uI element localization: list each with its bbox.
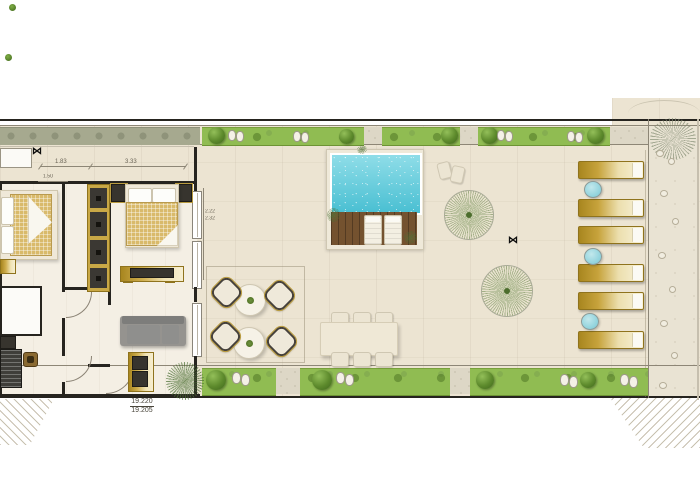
stone	[672, 218, 679, 225]
pebble	[569, 376, 578, 388]
round-bush	[441, 127, 458, 144]
pebble	[575, 132, 583, 143]
sofa	[120, 316, 186, 346]
wardrobe-cell	[90, 188, 107, 208]
partition-wall	[62, 181, 65, 292]
level-marker-icon: ⋈	[32, 147, 42, 157]
table-centerpiece	[246, 340, 253, 347]
pebble	[497, 130, 505, 141]
stone	[658, 252, 666, 259]
tree-marker	[9, 4, 16, 11]
stone	[668, 158, 675, 165]
round-bush	[339, 129, 354, 144]
louvered-unit	[0, 349, 22, 388]
pebble	[232, 372, 241, 384]
pebble	[241, 374, 250, 386]
dimension-line	[40, 166, 186, 167]
wardrobe-cell	[90, 268, 107, 288]
planter-divider	[610, 127, 648, 144]
bed-pillow	[128, 188, 152, 203]
ornamental-plant	[444, 190, 494, 240]
round-bush	[206, 370, 226, 390]
sofa-cushion	[162, 325, 179, 344]
teal-side-table	[581, 313, 599, 330]
pebble	[293, 131, 301, 142]
gravel-strip-line	[648, 119, 649, 398]
stone	[656, 150, 664, 157]
stair-hatch	[0, 399, 54, 445]
wardrobe-cell	[90, 240, 107, 264]
lounger-pillow	[632, 266, 642, 280]
east-wall-segment	[194, 287, 197, 302]
planter-divider	[364, 127, 382, 144]
table-centerpiece	[247, 297, 254, 304]
stone	[660, 190, 668, 197]
window	[192, 241, 202, 289]
lounger-pillow	[632, 201, 642, 215]
terrace-side-wall	[194, 147, 197, 183]
level-marker-icon: ⋈	[508, 236, 518, 246]
partition-wall	[62, 318, 65, 356]
tree-marker	[5, 54, 12, 61]
lounger-pillow	[632, 333, 642, 347]
muted-hedge	[0, 127, 200, 145]
teal-side-table	[584, 181, 602, 198]
pebble	[336, 372, 345, 384]
planter-box	[0, 148, 32, 168]
floor-plan-canvas: 1.83 3.33 1.50 2.22 2.32 ⋈ ⋈ 19.220 19.2…	[0, 0, 700, 500]
lounger-pillow	[632, 163, 642, 177]
pebble	[505, 131, 513, 142]
cabinet-item	[132, 371, 148, 387]
deck-plant	[327, 208, 340, 222]
cabinet-item	[132, 356, 148, 370]
bed-pillow	[152, 188, 176, 203]
terrace-boundary-line	[0, 146, 194, 147]
pool-water	[330, 153, 422, 215]
teal-side-table	[584, 248, 602, 265]
planter-divider	[460, 127, 478, 144]
partition-wall	[62, 382, 65, 395]
round-bush	[312, 370, 332, 390]
dining-chair	[353, 352, 371, 367]
stair-hatch	[598, 398, 700, 448]
east-edge-line	[697, 119, 699, 400]
pebble	[620, 374, 629, 386]
sun-lounger	[578, 264, 644, 282]
stone	[660, 320, 668, 327]
sun-lounger	[578, 226, 644, 244]
dining-chair	[331, 352, 349, 367]
sliding-door-window	[192, 303, 202, 357]
dimension-label: 2.32	[205, 216, 215, 221]
stone	[669, 286, 676, 293]
deck-plant	[357, 145, 367, 154]
sun-lounger	[578, 199, 644, 217]
deck-plant	[404, 231, 417, 244]
planter-divider	[450, 368, 470, 394]
round-bush	[481, 127, 498, 144]
ornamental-plant	[481, 265, 533, 317]
wardrobe-cell	[90, 212, 107, 236]
lounger-zone-line	[645, 150, 646, 397]
apartment-bottom-wall	[0, 394, 200, 397]
window	[192, 191, 202, 239]
pebble	[567, 131, 575, 142]
dining-table	[320, 322, 398, 356]
potted-palm	[166, 362, 204, 400]
sofa-back	[122, 316, 184, 324]
pebble	[345, 374, 354, 386]
stone	[671, 352, 678, 359]
planter-divider	[276, 368, 300, 394]
lounger-pillow	[632, 294, 642, 308]
pebble	[236, 131, 244, 142]
sofa-cushion	[127, 325, 160, 344]
pebble	[629, 376, 638, 388]
counter	[0, 286, 42, 336]
spot-elevation-upper: 19.220	[130, 398, 153, 407]
dimension-label: 3.33	[125, 159, 137, 165]
dimension-label: 1.83	[55, 159, 67, 165]
round-bush	[587, 127, 604, 144]
small-unit	[0, 336, 16, 349]
spot-elevation-lower: 19.205	[131, 407, 152, 414]
stool	[23, 352, 38, 367]
dining-chair	[375, 352, 393, 367]
pebble	[301, 132, 309, 143]
nightstand	[0, 259, 16, 274]
bed-pillow	[1, 197, 14, 225]
stone	[659, 382, 667, 389]
dimension-label: 2.22	[205, 209, 215, 214]
tv	[130, 268, 174, 278]
bed-pillow	[1, 226, 14, 254]
north-wall-inner-line	[0, 125, 700, 126]
sun-lounger	[578, 331, 644, 349]
round-bush	[208, 127, 225, 144]
east-wall-segment	[194, 181, 197, 191]
sun-lounger	[578, 292, 644, 310]
sun-lounger	[578, 161, 644, 179]
spot-elevation: 19.220 19.205	[118, 398, 166, 416]
north-wall	[0, 119, 700, 121]
dimension-label: 1.50	[43, 174, 53, 179]
lounger-pillow	[632, 228, 642, 242]
pebble	[560, 374, 569, 386]
deck-lounger	[384, 215, 402, 245]
wardrobe	[87, 184, 110, 292]
round-bush	[476, 371, 494, 389]
deck-lounger	[364, 215, 382, 245]
dimension-line	[38, 181, 68, 182]
dimension-line	[203, 188, 204, 280]
pebble	[228, 130, 236, 141]
round-bush	[580, 372, 596, 388]
